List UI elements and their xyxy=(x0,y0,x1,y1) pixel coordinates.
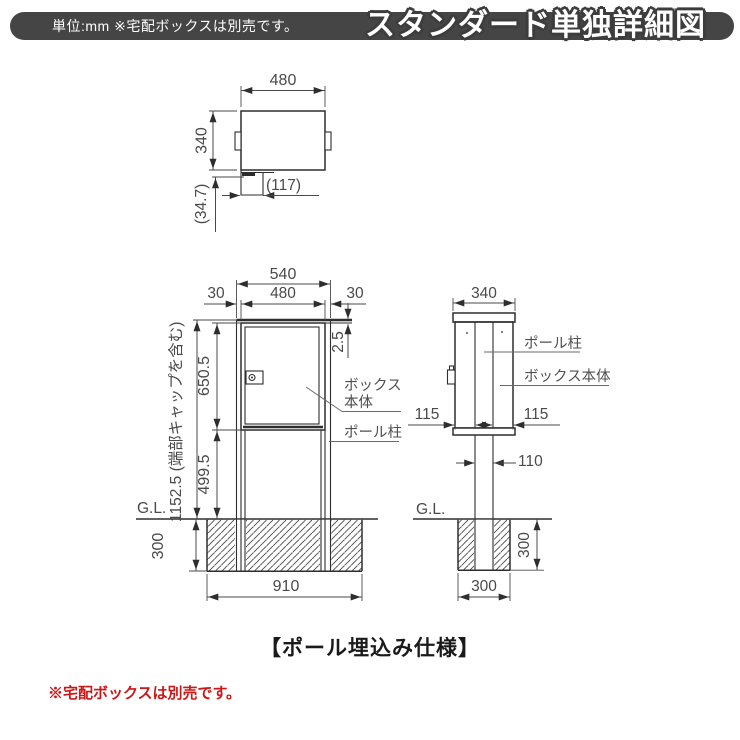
dim-latch-depth: (34.7) xyxy=(193,177,244,232)
box-side xyxy=(455,322,513,428)
dim-side-depth: 340 xyxy=(453,285,515,311)
lock-side xyxy=(448,370,456,384)
sold-separately-note: ※宅配ボックスは別売です。 xyxy=(48,682,241,703)
svg-text:ボックス本体: ボックス本体 xyxy=(524,368,611,385)
label-pole-side: ポール柱 xyxy=(484,335,582,352)
svg-text:ボックス: ボックス xyxy=(344,377,402,394)
svg-text:115: 115 xyxy=(415,406,440,423)
drawing-canvas: 480 340 (117) xyxy=(0,0,740,740)
dim-latch-width: (117) xyxy=(222,177,319,196)
label-pole-front: ポール柱 xyxy=(329,424,402,442)
svg-text:300: 300 xyxy=(516,532,533,558)
svg-text:110: 110 xyxy=(518,453,543,470)
bottom-end-cap xyxy=(453,428,515,435)
svg-text:340: 340 xyxy=(194,127,211,154)
dim-top-width: 480 xyxy=(241,72,325,107)
dim-offsets: 115 115 xyxy=(408,406,560,430)
svg-text:300: 300 xyxy=(150,533,167,560)
right-hinge-tab xyxy=(325,132,331,150)
svg-text:650.5: 650.5 xyxy=(196,356,213,396)
svg-text:300: 300 xyxy=(471,578,497,595)
svg-text:ポール柱: ポール柱 xyxy=(524,335,582,352)
svg-text:480: 480 xyxy=(270,72,297,89)
footing-hatch xyxy=(207,520,362,571)
left-hinge-tab xyxy=(235,132,241,150)
svg-text:30: 30 xyxy=(207,285,225,302)
front-view-drawing: 540 30 480 30 xyxy=(136,266,402,601)
svg-text:(117): (117) xyxy=(266,177,301,194)
svg-text:30: 30 xyxy=(346,285,364,302)
svg-text:(34.7): (34.7) xyxy=(193,184,210,225)
label-box-side: ボックス本体 xyxy=(500,368,611,386)
spec-caption: 【ポール埋込み仕様】 xyxy=(0,632,740,662)
dim-cap-gap: 2.5 xyxy=(325,303,352,358)
dim-pole-depth: 110 xyxy=(456,453,543,470)
top-end-cap xyxy=(453,313,515,322)
latch-detail xyxy=(242,172,255,176)
dim-footing-width-front: 910 xyxy=(207,574,362,601)
dim-top-depth: 340 xyxy=(194,111,238,170)
dim-box-height: 650.5 xyxy=(196,323,241,430)
svg-text:1152.5 (端部キャップを含む): 1152.5 (端部キャップを含む) xyxy=(167,322,185,522)
svg-text:910: 910 xyxy=(273,578,300,595)
gl-label-side: G.L. xyxy=(416,501,445,518)
top-view-drawing: 480 340 (117) xyxy=(193,72,331,232)
dim-ground-clearance: 499.5 xyxy=(196,430,217,519)
svg-text:499.5: 499.5 xyxy=(196,454,213,494)
svg-text:ポール柱: ポール柱 xyxy=(344,424,402,441)
gl-label-front: G.L. xyxy=(137,500,166,517)
svg-text:540: 540 xyxy=(270,266,297,283)
dim-footing-width-side: 300 xyxy=(458,573,510,601)
dim-embed-depth-side: 300 xyxy=(510,519,544,570)
svg-text:340: 340 xyxy=(471,285,497,302)
technical-drawing-page: 単位:mm ※宅配ボックスは別売です。 スタンダード単独詳細図 xyxy=(0,0,740,740)
svg-text:本体: 本体 xyxy=(344,394,373,411)
side-view-drawing: 340 ポール柱 ボックス本体 xyxy=(408,285,611,601)
svg-text:480: 480 xyxy=(270,285,296,302)
svg-text:115: 115 xyxy=(524,406,549,423)
dim-embed-depth-front: 300 xyxy=(150,519,207,571)
svg-text:2.5: 2.5 xyxy=(330,331,347,353)
dim-front-box-width: 30 480 30 xyxy=(204,285,366,320)
